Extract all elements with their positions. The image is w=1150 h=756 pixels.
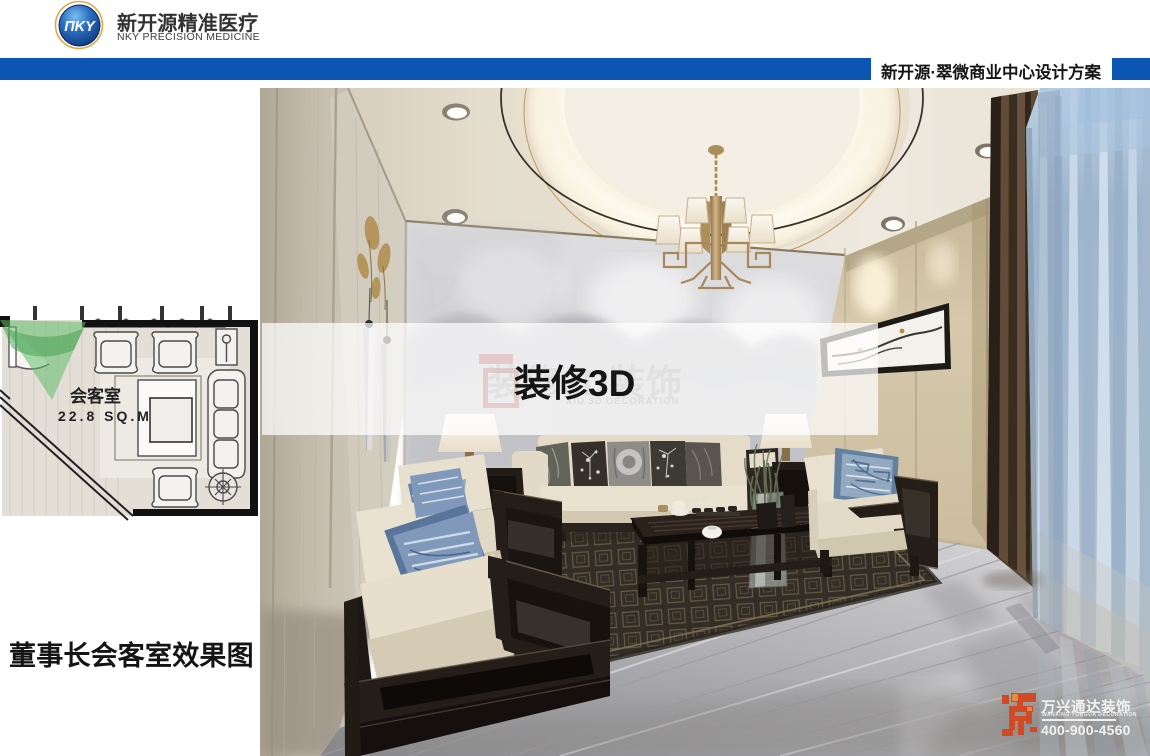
svg-text:22.8 SQ.M: 22.8 SQ.M <box>58 408 152 424</box>
svg-text:ПKY: ПKY <box>64 19 96 35</box>
svg-text:会客室: 会客室 <box>70 386 121 406</box>
